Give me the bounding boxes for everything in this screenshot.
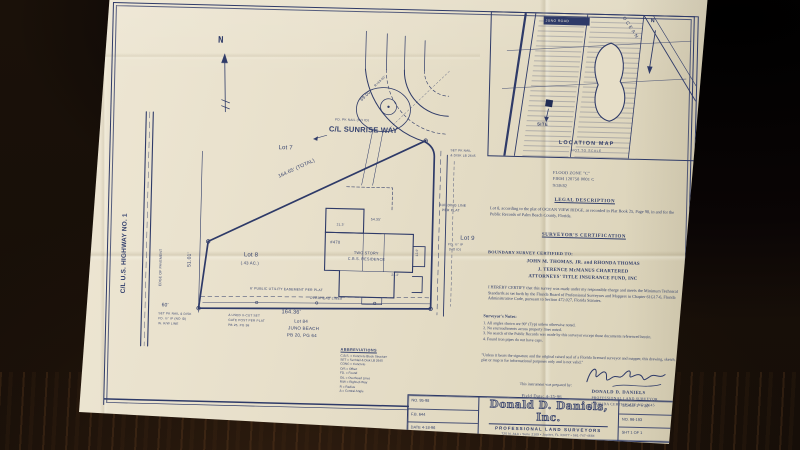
plat-annotation: & DISK LB 2645 [450, 154, 475, 158]
abbreviations-block: ABBREVIATIONS C.B.S. = Concrete Block St… [340, 348, 417, 396]
flood-zone-line: 9/30/82 [553, 183, 595, 190]
company-name: Donald D. Daniels, Inc. [479, 399, 619, 425]
plat-annotation: 54.35' [371, 218, 381, 222]
abbreviations-list: C.B.S. = Concrete Block StructureSET = S… [340, 353, 417, 395]
plat-annotation: W. R/W LINE [158, 322, 178, 326]
plat-annotation: PER PLAT [442, 209, 460, 213]
title-block-center: Donald D. Daniels, Inc. PROFESSIONAL LAN… [478, 397, 618, 440]
plat-annotation: #470 [330, 240, 340, 244]
plat-annotation: 164.36' [281, 310, 300, 316]
plat-annotation: C/L SUNRISE WAY [329, 125, 398, 134]
plat-annotation: TWO STORY [354, 252, 379, 256]
map-road-label: JUNO ROAD [546, 18, 570, 23]
north-arrow-label: N [218, 36, 224, 46]
map-north-label: N [651, 18, 655, 24]
plat-annotation: 12.0' [416, 249, 419, 257]
location-map: JUNO ROAD OCEAN N SITE LOCATION MAP NOT … [487, 11, 698, 161]
plat-annotation: JUNO BEACH [288, 326, 319, 331]
drawing-border-frame: N C/L SUNRISE WAYFD. PK NAIL (NO ID)164.… [103, 2, 695, 419]
plat-annotation: PB 20, PG 64 [287, 333, 317, 338]
flood-zone-note: FLOOD ZONE "C"FIRM 120758 0001 C9/30/82 [553, 170, 595, 190]
plat-annotation: 60' [162, 303, 169, 308]
plat-annotation: Lot 84 [294, 320, 308, 325]
plat-annotation: (NO ID) [449, 248, 461, 251]
surveyor-notes-heading: Surveyor's Notes: [483, 313, 516, 319]
plat-annotation: SET PK NAIL [450, 149, 471, 153]
plat-annotation: (.43 AC.) [241, 261, 259, 266]
plat-annotation: Lot 9 [460, 236, 475, 242]
plat-annotation: 51.01' [188, 252, 193, 267]
plat-annotation: FD. ½" IP [448, 243, 463, 246]
plat-annotation: Lot 7 [278, 145, 293, 151]
plat-annotation: 24.2' [391, 274, 399, 277]
map-site-label: SITE [537, 121, 548, 126]
plat-annotation: PB 25, PG 98 [228, 324, 249, 328]
plat-annotation: Lot 8 [244, 252, 259, 258]
photo-scene: N C/L SUNRISE WAYFD. PK NAIL (NO ID)164.… [0, 0, 800, 450]
plat-annotation: 21.3' [337, 224, 345, 227]
